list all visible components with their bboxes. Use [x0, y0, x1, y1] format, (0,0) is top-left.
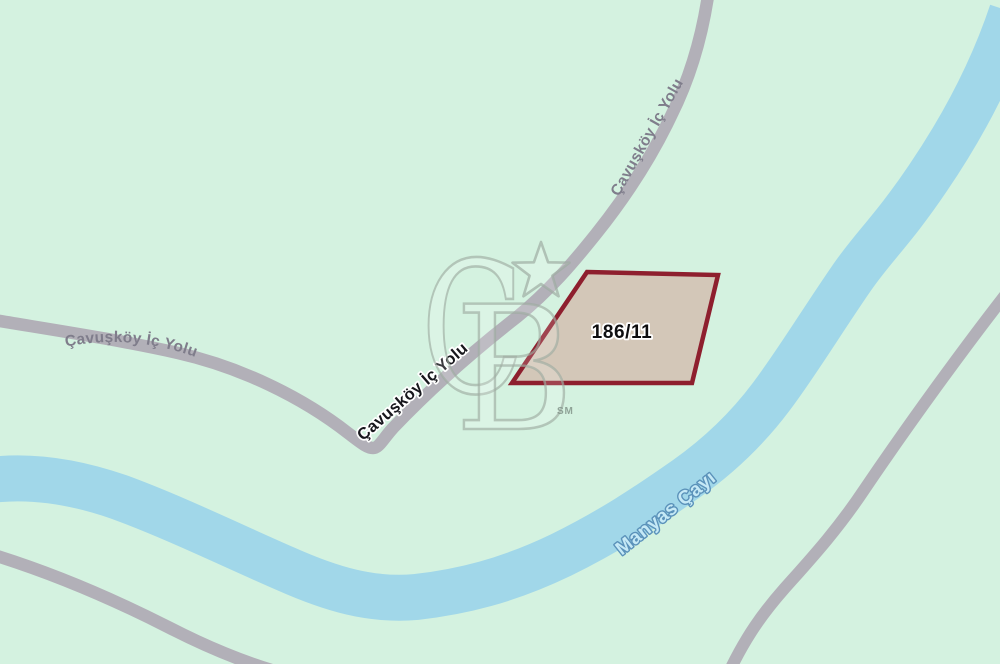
watermark-letter-b: B — [455, 270, 574, 470]
parcel-label: 186/11 — [592, 322, 653, 343]
watermark-sm-label: SM — [557, 406, 574, 417]
map-view: Çavuşköy İç Yolu Çavuşköy İç Yolu Çavuşk… — [0, 0, 1000, 664]
map-canvas: Çavuşköy İç Yolu Çavuşköy İç Yolu Çavuşk… — [0, 0, 1000, 664]
